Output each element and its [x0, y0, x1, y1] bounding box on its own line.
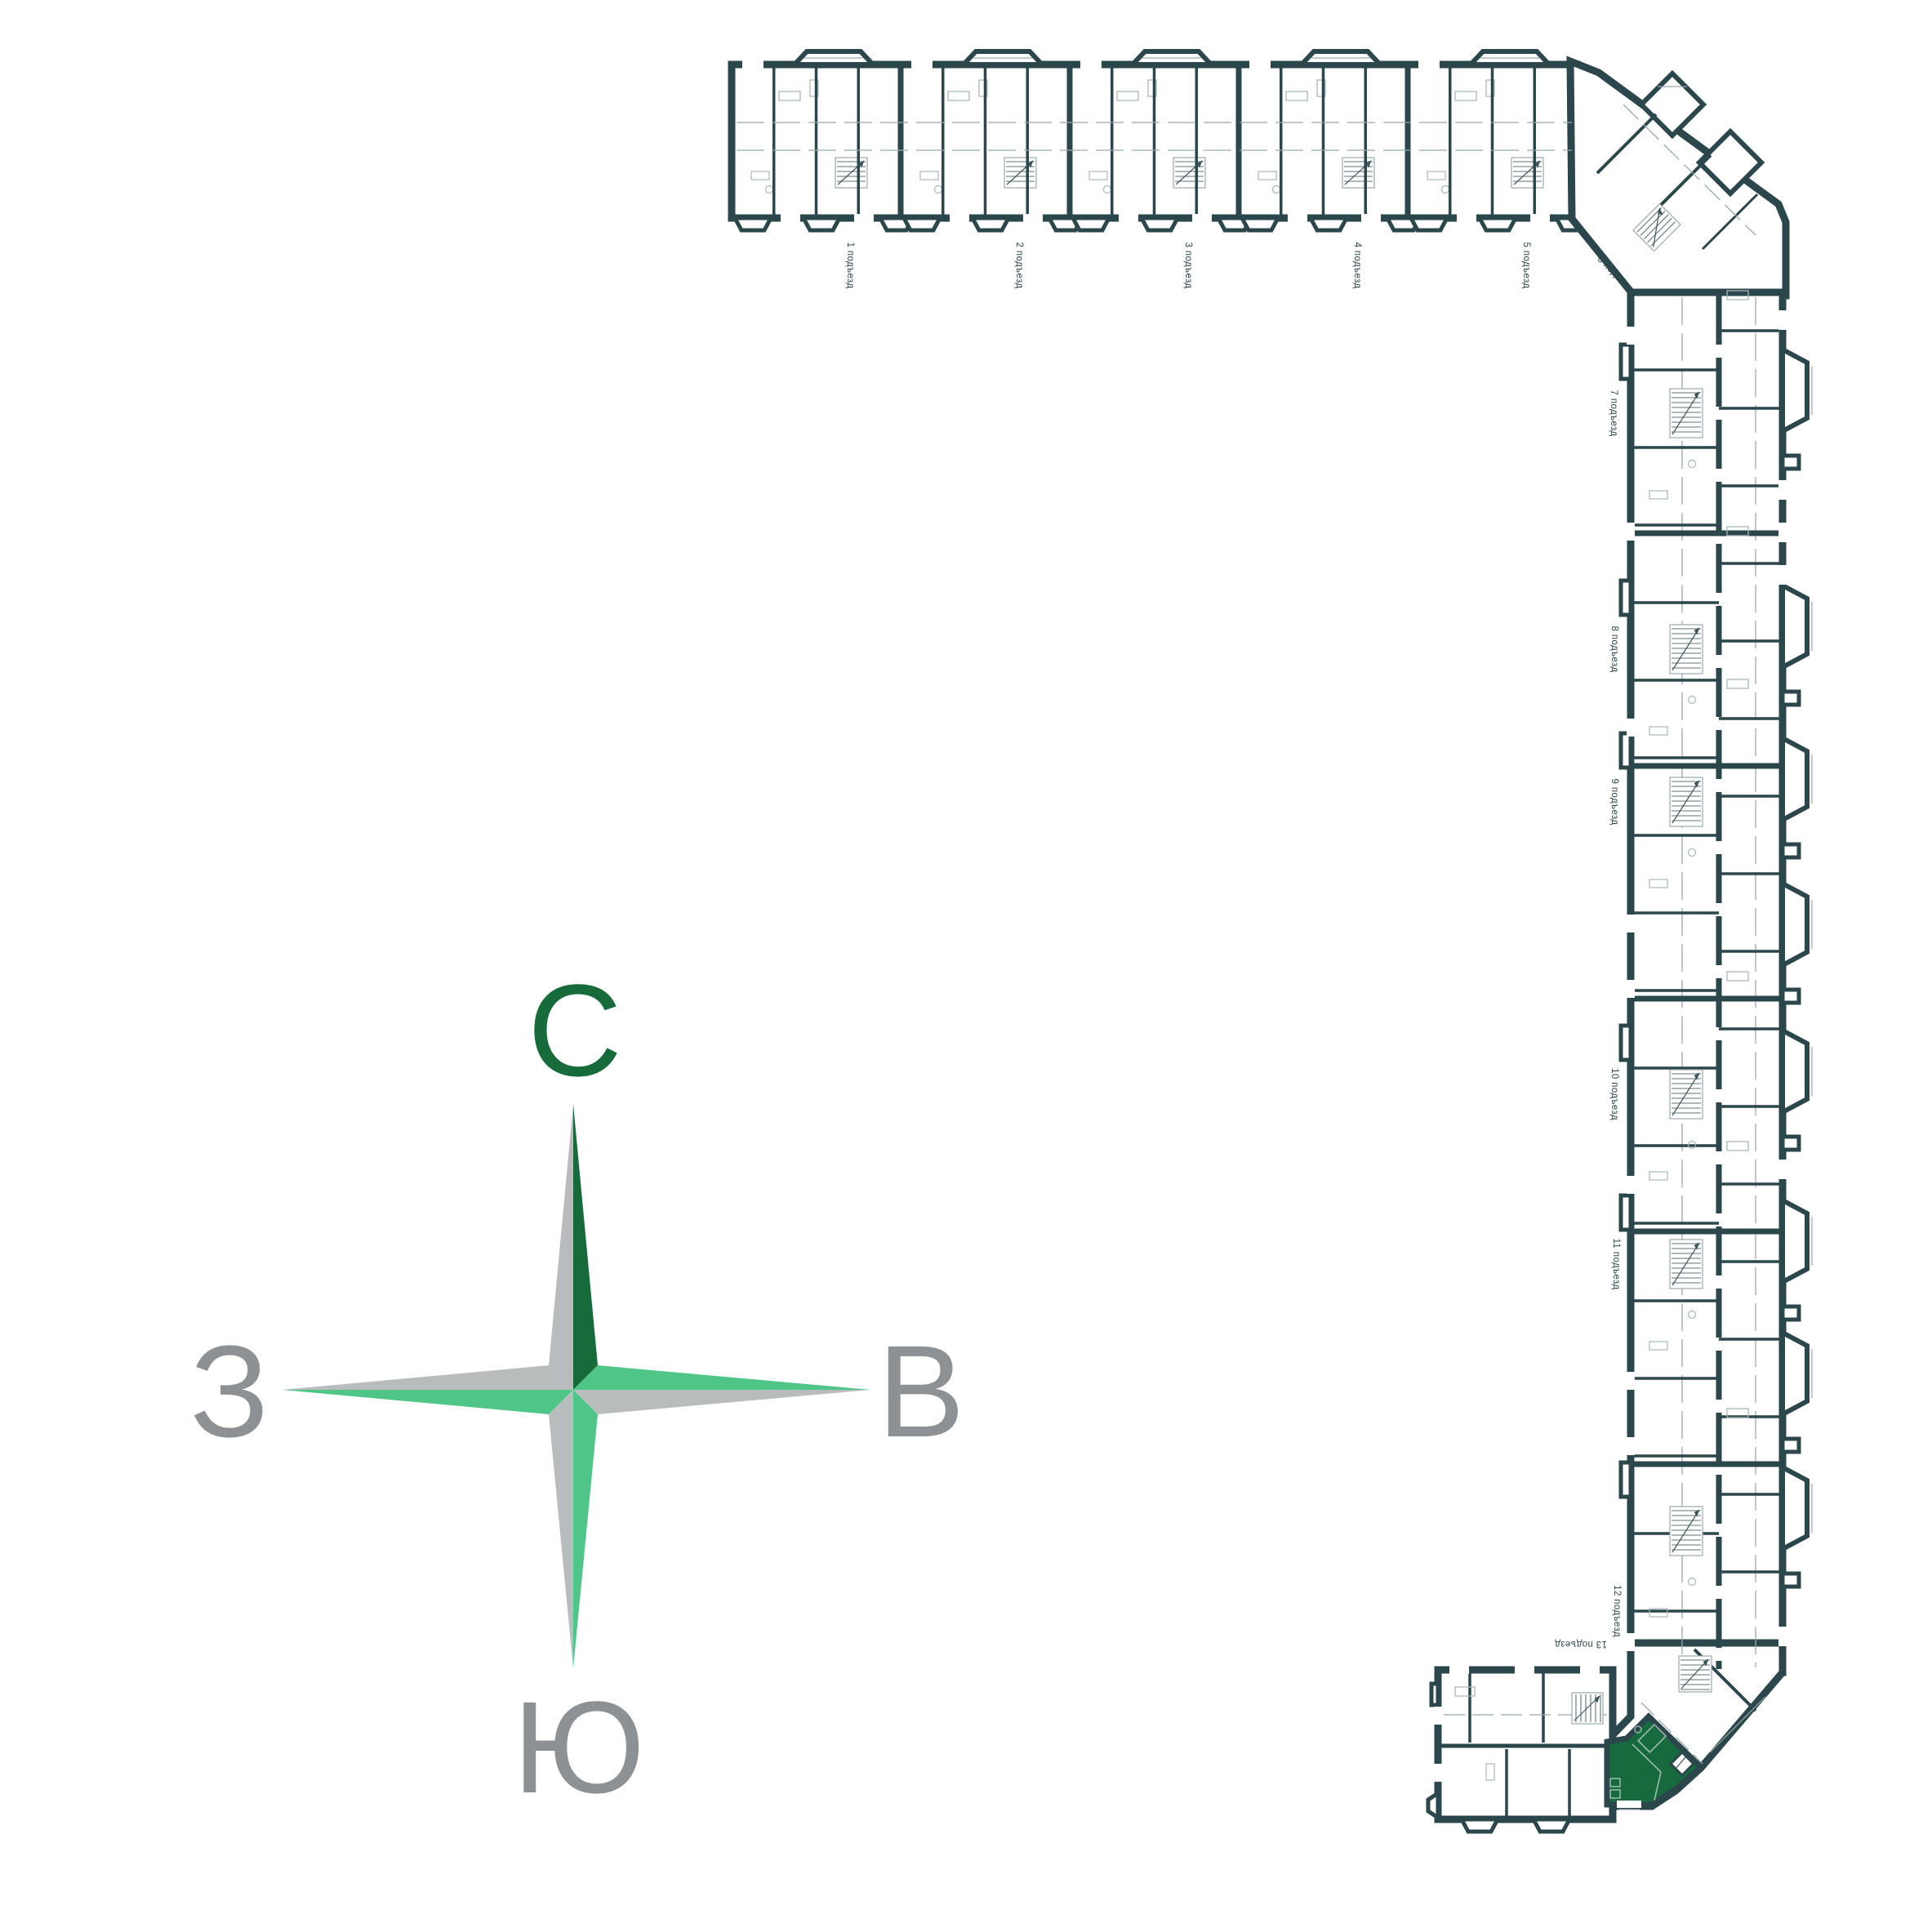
entrance-label-4: 4 подъезд [1352, 242, 1362, 288]
compass-west-bottom [283, 1390, 573, 1414]
staircase [1679, 1656, 1712, 1692]
entrance-label-9: 9 подъезд [1609, 778, 1619, 825]
compass-east-top [573, 1365, 870, 1390]
entrance-label-3: 3 подъезд [1183, 242, 1193, 288]
entrance-label-12: 12 подъезд [1612, 1585, 1622, 1637]
compass-letter-east: В [878, 1318, 965, 1464]
entrance-label-5: 5 подъезд [1521, 242, 1531, 288]
staircase [1004, 158, 1036, 188]
staircase [1670, 1507, 1703, 1556]
entrance-label-10: 10 подъезд [1609, 1068, 1619, 1120]
compass-letter-south: Ю [513, 1674, 645, 1820]
compass-letter-west: З [190, 1318, 269, 1464]
staircase [835, 158, 867, 188]
floorplan-canvas: 1 подъезд2 подъезд3 подъезд4 подъезд5 по… [0, 0, 1932, 1932]
entrance-label-8: 8 подъезд [1609, 625, 1619, 672]
entrance-label-1: 1 подъезд [845, 242, 855, 288]
staircase [1670, 625, 1703, 674]
staircase [1342, 158, 1374, 188]
compass-rose: СЮЗВ [190, 957, 965, 1820]
staircase [1511, 158, 1543, 188]
building-floor-plan: 1 подъезд2 подъезд3 подъезд4 подъезд5 по… [0, 0, 1932, 1932]
compass-south-left [549, 1390, 573, 1668]
staircase [1670, 1070, 1703, 1119]
compass-letter-north: С [528, 957, 622, 1103]
compass-west-top [283, 1365, 573, 1390]
entrance-label-11: 11 подъезд [1611, 1238, 1621, 1289]
staircase [1670, 389, 1703, 438]
compass-south-right [573, 1390, 598, 1668]
compass-north-right [573, 1104, 598, 1390]
staircase [1670, 777, 1703, 826]
entrance-label-7: 7 подъезд [1609, 390, 1618, 436]
compass-east-bottom [573, 1390, 870, 1414]
interior-detail [737, 58, 1779, 1816]
staircase [1173, 158, 1205, 188]
staircase [1670, 1240, 1703, 1289]
entrance-label-2: 2 подъезд [1014, 242, 1024, 288]
entrance-label-13: 13 подъезд [1555, 1639, 1607, 1649]
building-walls [732, 51, 1807, 1832]
staircase [1572, 1693, 1603, 1724]
compass-north-left [549, 1104, 573, 1390]
